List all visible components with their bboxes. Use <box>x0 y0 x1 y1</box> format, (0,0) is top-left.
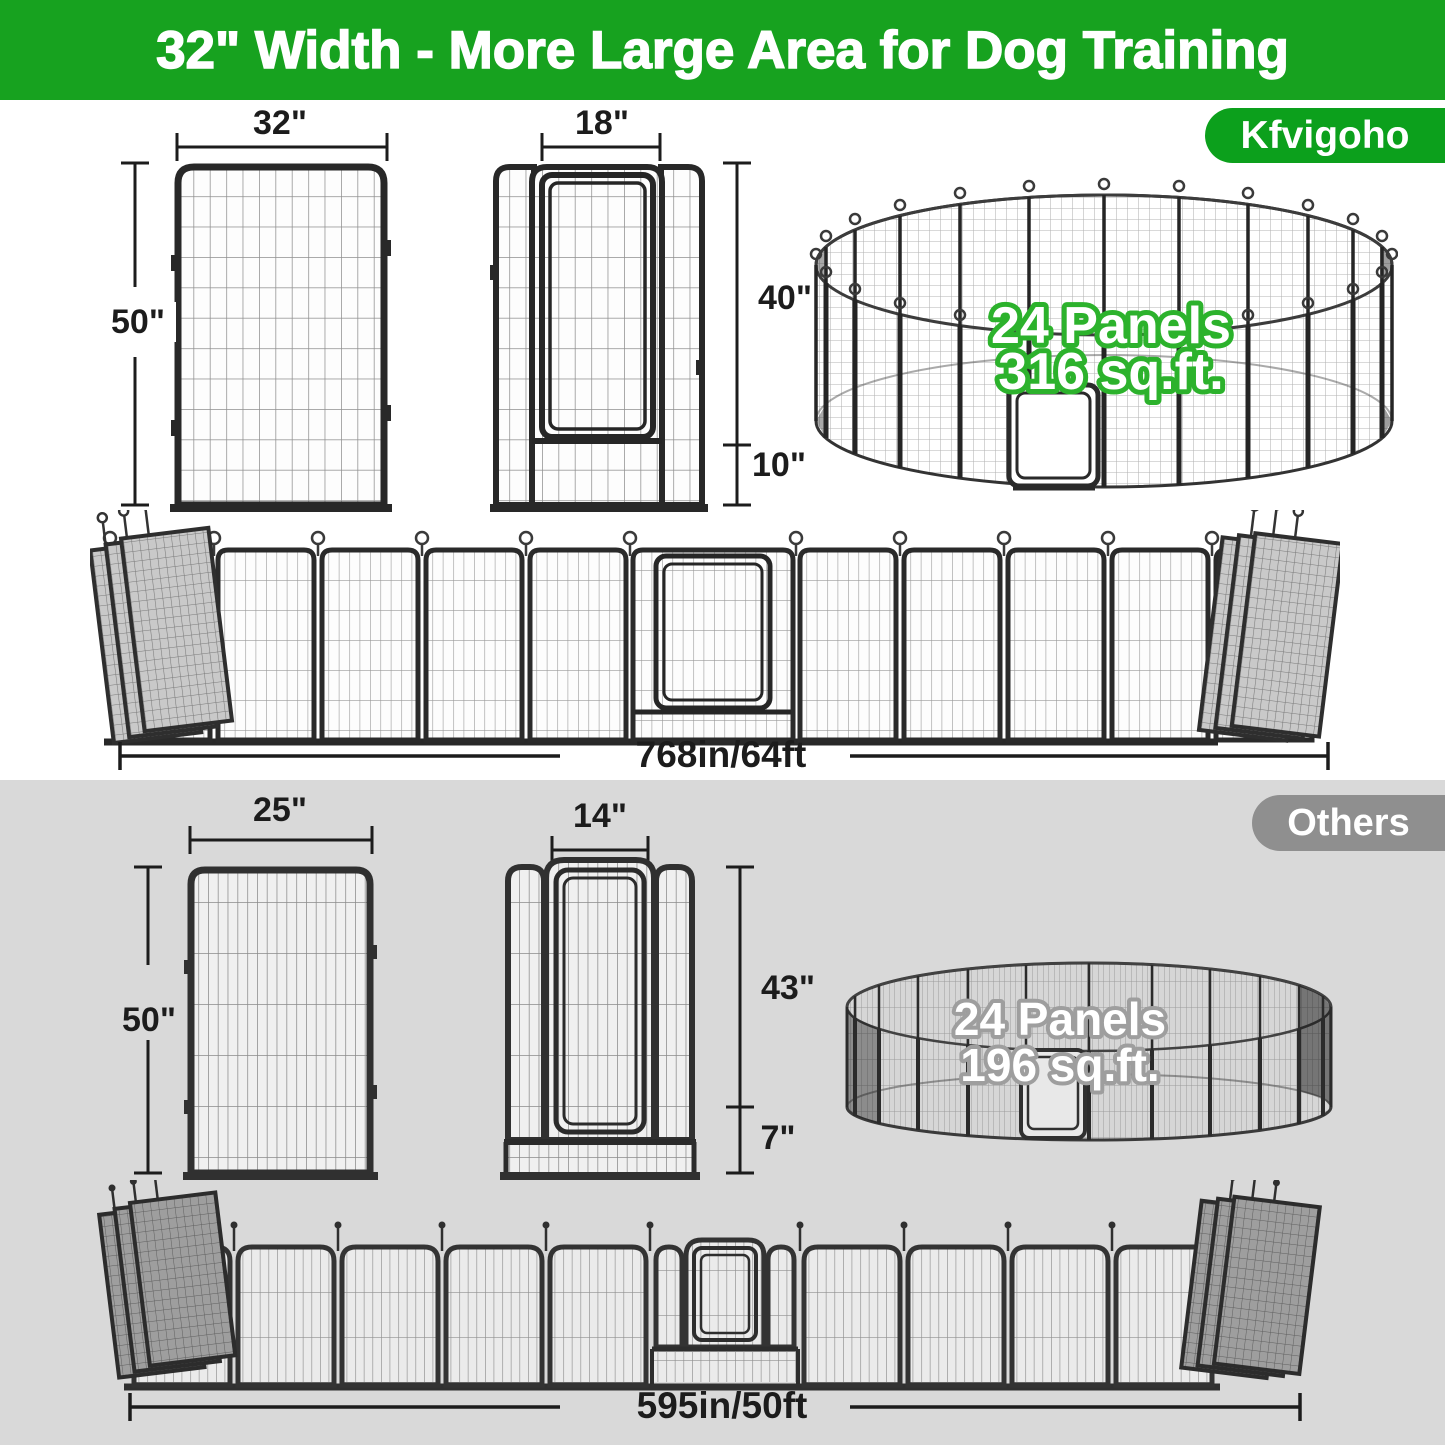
panel-height-label: 50" <box>100 302 176 342</box>
pen-caption: 24 Panels 316 sq.ft. <box>991 297 1231 401</box>
brand-badge: Kfvigoho <box>1205 108 1445 163</box>
others-door-width-label: 14" <box>550 796 650 836</box>
others-single-panel-diagram <box>110 800 430 1190</box>
door-panel <box>500 860 700 1176</box>
width-dimension-line <box>190 826 372 854</box>
others-door-height-label: 43" <box>748 968 828 1008</box>
row-door-panel <box>633 550 793 740</box>
pen-area-label: 196 sq.ft. <box>960 1039 1159 1091</box>
others-badge: Others <box>1252 795 1445 851</box>
others-bottom-height-label: 7" <box>748 1118 808 1158</box>
pen-caption: 24 Panels 196 sq.ft. <box>954 993 1166 1091</box>
folded-panels-left <box>90 510 233 743</box>
folded-panels-right <box>1199 510 1340 744</box>
pen-area-label: 316 sq.ft. <box>998 343 1223 401</box>
page-title: 32" Width - More Large Area for Dog Trai… <box>156 20 1289 81</box>
total-length-label: 768in/64ft <box>576 735 866 775</box>
kfvigoho-circular-pen-illustration: 24 Panels 316 sq.ft. <box>808 175 1398 495</box>
others-circular-pen-illustration: 24 Panels 196 sq.ft. <box>845 955 1335 1155</box>
others-total-length-label: 595in/50ft <box>577 1386 867 1426</box>
product-infographic: 32" Width - More Large Area for Dog Trai… <box>0 0 1445 1445</box>
header-banner: 32" Width - More Large Area for Dog Trai… <box>0 0 1445 100</box>
others-panel-width-label: 25" <box>230 790 330 830</box>
door-width-label: 18" <box>552 103 652 143</box>
others-panel-height-label: 50" <box>111 1000 187 1040</box>
door-height-label: 40" <box>745 278 825 318</box>
panel-width-label: 32" <box>230 103 330 143</box>
mesh-panel <box>183 870 378 1176</box>
door-panel <box>490 167 708 508</box>
folded-panels-left <box>95 1180 237 1378</box>
pen-panel-count-label: 24 Panels <box>954 993 1166 1045</box>
folded-panels-right <box>1181 1180 1323 1382</box>
bottom-height-label: 10" <box>743 445 815 485</box>
mesh-panel <box>170 167 392 508</box>
row-door-panel <box>652 1240 798 1384</box>
